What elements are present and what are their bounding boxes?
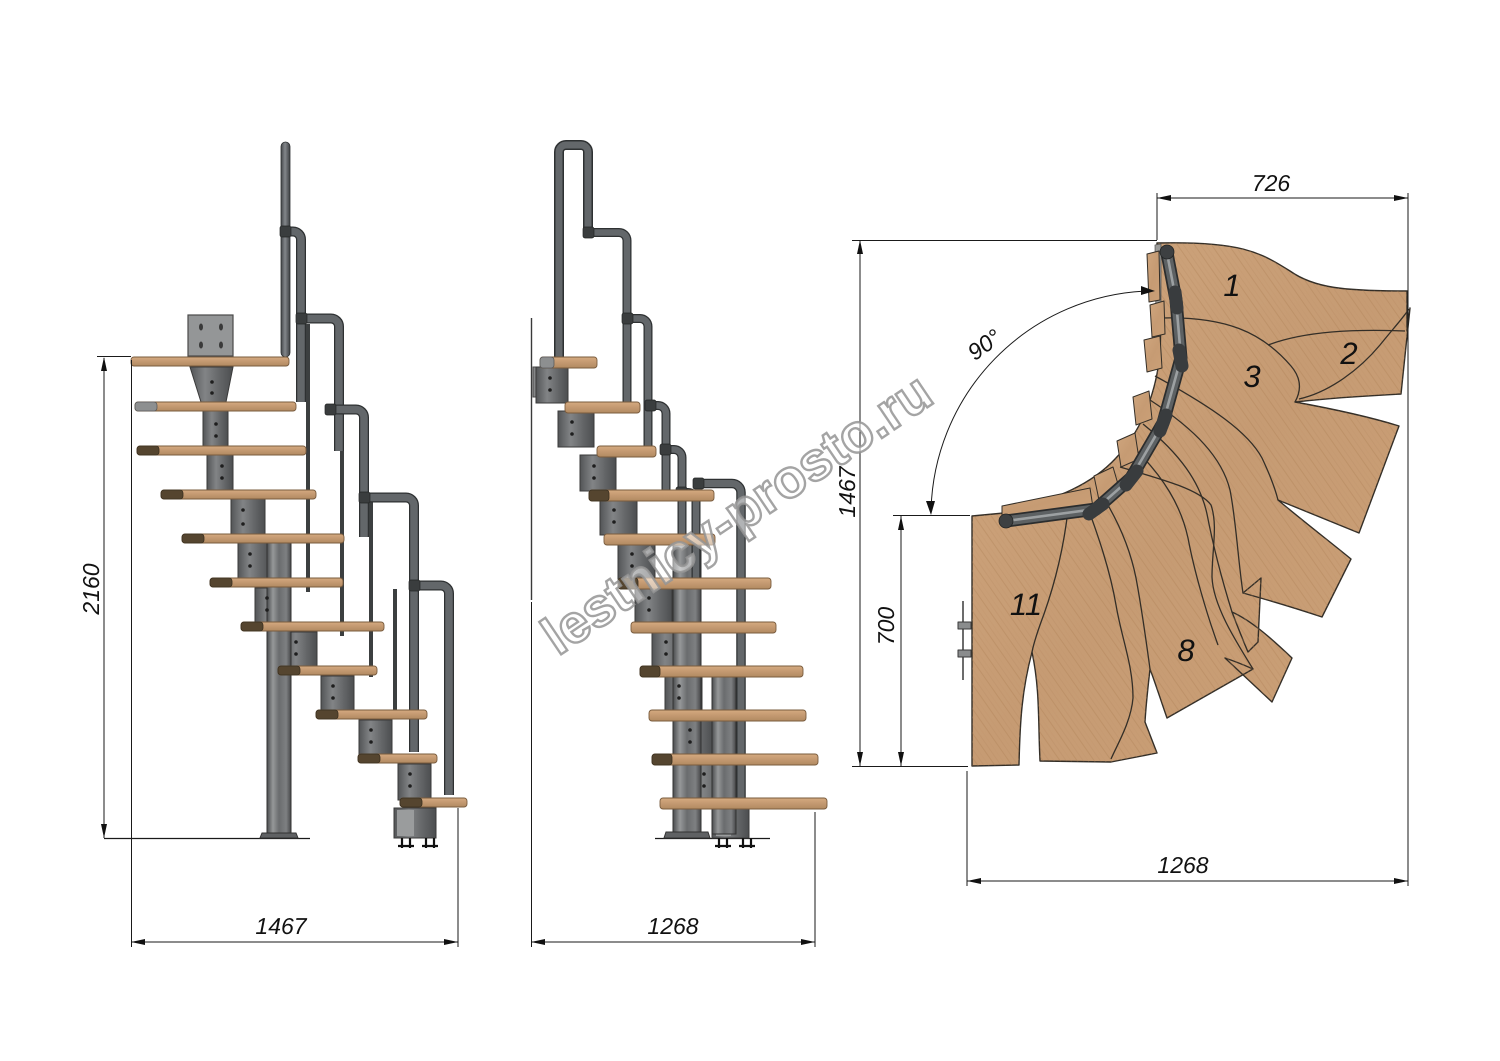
svg-text:726: 726 [1252, 170, 1291, 196]
svg-text:2: 2 [1339, 336, 1357, 371]
svg-text:3: 3 [1243, 359, 1260, 394]
svg-text:11: 11 [1010, 587, 1042, 622]
svg-text:1268: 1268 [647, 913, 698, 939]
svg-text:1467: 1467 [255, 913, 307, 939]
svg-text:8: 8 [1177, 633, 1195, 668]
svg-text:2160: 2160 [78, 563, 104, 615]
svg-text:700: 700 [873, 607, 899, 646]
svg-text:1268: 1268 [1157, 852, 1208, 878]
svg-text:1: 1 [1223, 268, 1240, 303]
